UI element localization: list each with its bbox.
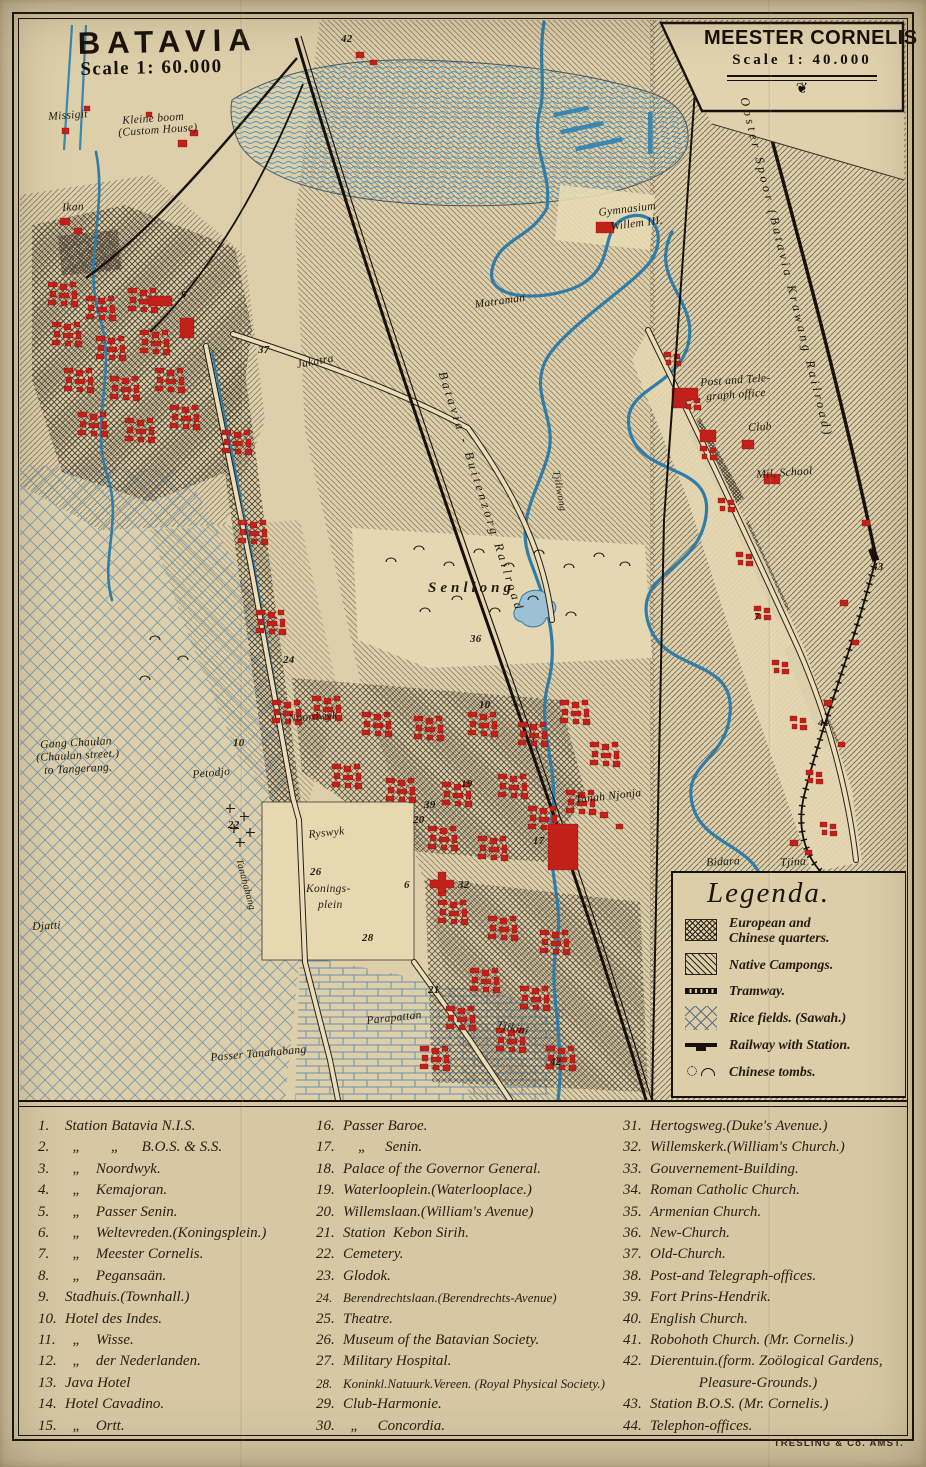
index-entry-label: Glodok. bbox=[343, 1266, 391, 1287]
index-entry-label: Willemslaan.(William's Avenue) bbox=[343, 1202, 533, 1223]
legend-box: Legenda. European and Chinese quarters. … bbox=[671, 871, 906, 1098]
index-entry-label: Hotel Cavadino. bbox=[65, 1394, 164, 1415]
index-entry-number: 11. bbox=[38, 1330, 65, 1351]
index-entry: 12. „ der Nederlanden. bbox=[38, 1351, 323, 1372]
index-entry-label: Hotel des Indes. bbox=[65, 1309, 162, 1330]
index-entry: 40. English Church. bbox=[623, 1309, 908, 1330]
index-entry: 13. Java Hotel bbox=[38, 1373, 323, 1394]
index-entry-number: 23. bbox=[316, 1266, 343, 1287]
index-entry-label: Waterlooplein.(Waterlooplace.) bbox=[343, 1180, 532, 1201]
legend-item: Chinese tombs. bbox=[685, 1060, 897, 1082]
legend-item: European and Chinese quarters. bbox=[685, 915, 897, 946]
index-entry-number: 24. bbox=[316, 1287, 343, 1308]
legend-item: Rice fields. (Sawah.) bbox=[685, 1006, 897, 1030]
index-entry-number: 19. bbox=[316, 1180, 343, 1201]
index-entry-label: „ „ B.O.S. & S.S. bbox=[65, 1137, 222, 1158]
map-sheet: BATAVIA Scale 1: 60.000 MEESTER CORNELIS… bbox=[0, 0, 926, 1467]
index-entry: 7. „ Meester Cornelis. bbox=[38, 1244, 323, 1265]
index-entry-number: 41. bbox=[623, 1330, 650, 1351]
index-entry-number: 36. bbox=[623, 1223, 650, 1244]
index-entry: 1. Station Batavia N.I.S. bbox=[38, 1116, 323, 1137]
legend-symbol-icon bbox=[685, 988, 717, 994]
index-entry-label: „ Ortt. bbox=[65, 1416, 125, 1437]
index-entry: 20. Willemslaan.(William's Avenue) bbox=[316, 1202, 624, 1223]
legend-symbol-icon bbox=[685, 1006, 717, 1030]
index-entry-label: „ Noordwyk. bbox=[65, 1159, 161, 1180]
index-column-1: 1. Station Batavia N.I.S. 2. „ „ B.O.S. … bbox=[38, 1116, 323, 1437]
index-entry-label: Berendrechtslaan.(Berendrechts-Avenue) bbox=[343, 1287, 557, 1308]
index-entry: 33. Gouvernement-Building. bbox=[623, 1159, 908, 1180]
index-entry-label: Roman Catholic Church. bbox=[650, 1180, 800, 1201]
index-entry-number: 13. bbox=[38, 1373, 65, 1394]
index-entry: 10. Hotel des Indes. bbox=[38, 1309, 323, 1330]
meester-cornelis-title-block: MEESTER CORNELIS Scale 1: 40.000 ❦ bbox=[704, 27, 900, 96]
index-entry-label: „ Passer Senin. bbox=[65, 1202, 178, 1223]
index-entry-number: 5. bbox=[38, 1202, 65, 1223]
index-entry-number: 30. bbox=[316, 1416, 343, 1437]
index-entry-number: 21. bbox=[316, 1223, 343, 1244]
index-entry: 8. „ Pegansaän. bbox=[38, 1266, 323, 1287]
index-entry: 11. „ Wisse. bbox=[38, 1330, 323, 1351]
legend-item-label: Railway with Station. bbox=[729, 1037, 851, 1052]
index-entry-label: Museum of the Batavian Society. bbox=[343, 1330, 539, 1351]
index-entry: 28. Koninkl.Natuurk.Vereen. (Royal Physi… bbox=[316, 1373, 624, 1394]
index-entry: 4. „ Kemajoran. bbox=[38, 1180, 323, 1201]
index-entry-label: English Church. bbox=[650, 1309, 748, 1330]
index-entry-label: Willemskerk.(William's Church.) bbox=[650, 1137, 845, 1158]
legend-items: European and Chinese quarters. Native Ca… bbox=[685, 915, 897, 1082]
index-entry-number: 2. bbox=[38, 1137, 65, 1158]
index-entry-number: 42. bbox=[623, 1351, 650, 1394]
index-entry-label: „ Wisse. bbox=[65, 1330, 134, 1351]
index-entry: 43. Station B.O.S. (Mr. Cornelis.) bbox=[623, 1394, 908, 1415]
meester-cornelis-scale: Scale 1: 40.000 bbox=[704, 52, 900, 69]
index-entry-number: 32. bbox=[623, 1137, 650, 1158]
legend-item-label: Tramway. bbox=[729, 983, 785, 998]
index-entry: 15. „ Ortt. bbox=[38, 1416, 323, 1437]
index-entry-label: Gouvernement-Building. bbox=[650, 1159, 799, 1180]
index-entry: 19. Waterlooplein.(Waterlooplace.) bbox=[316, 1180, 624, 1201]
index-entry-label: Palace of the Governor General. bbox=[343, 1159, 541, 1180]
index-entry-label: „ Senin. bbox=[343, 1137, 422, 1158]
index-entry-number: 9. bbox=[38, 1287, 65, 1308]
index-entry-number: 16. bbox=[316, 1116, 343, 1137]
index-entry-number: 4. bbox=[38, 1180, 65, 1201]
index-entry-number: 28. bbox=[316, 1373, 343, 1394]
index-entry-label: Robohoth Church. (Mr. Cornelis.) bbox=[650, 1330, 854, 1351]
index-entry-label: Java Hotel bbox=[65, 1373, 130, 1394]
legend-item: Tramway. bbox=[685, 983, 897, 998]
index-entry: 30. „ Concordia. bbox=[316, 1416, 624, 1437]
fleuron-ornament-icon: ❦ bbox=[704, 81, 900, 96]
index-entry: 42. Dierentuin.(form. Zoölogical Gardens… bbox=[623, 1351, 908, 1394]
index-entry-number: 17. bbox=[316, 1137, 343, 1158]
index-entry: 39. Fort Prins-Hendrik. bbox=[623, 1287, 908, 1308]
index-entry-number: 31. bbox=[623, 1116, 650, 1137]
index-entry: 24. Berendrechtslaan.(Berendrechts-Avenu… bbox=[316, 1287, 624, 1308]
index-section: 1. Station Batavia N.I.S. 2. „ „ B.O.S. … bbox=[0, 1106, 926, 1426]
index-entry: 41. Robohoth Church. (Mr. Cornelis.) bbox=[623, 1330, 908, 1351]
index-entry: 25. Theatre. bbox=[316, 1309, 624, 1330]
batavia-title-block: BATAVIA Scale 1: 60.000 bbox=[77, 22, 258, 81]
index-entry-label: Club-Harmonie. bbox=[343, 1394, 442, 1415]
legend-item-label: Rice fields. (Sawah.) bbox=[729, 1010, 846, 1025]
index-entry-label: Dierentuin.(form. Zoölogical Gardens, Pl… bbox=[650, 1351, 883, 1394]
index-entry-number: 38. bbox=[623, 1266, 650, 1287]
index-entry-label: „ der Nederlanden. bbox=[65, 1351, 201, 1372]
index-entry: 44. Telephon-offices. bbox=[623, 1416, 908, 1437]
index-entry: 32. Willemskerk.(William's Church.) bbox=[623, 1137, 908, 1158]
index-entry-label: Armenian Church. bbox=[650, 1202, 761, 1223]
index-column-2: 16. Passer Baroe. 17. „ Senin. 18. Palac… bbox=[316, 1116, 624, 1437]
index-entry: 22. Cemetery. bbox=[316, 1244, 624, 1265]
index-entry-number: 8. bbox=[38, 1266, 65, 1287]
index-entry-number: 12. bbox=[38, 1351, 65, 1372]
index-entry-number: 1. bbox=[38, 1116, 65, 1137]
index-entry: 18. Palace of the Governor General. bbox=[316, 1159, 624, 1180]
index-entry-number: 29. bbox=[316, 1394, 343, 1415]
index-entry-number: 10. bbox=[38, 1309, 65, 1330]
index-entry-number: 14. bbox=[38, 1394, 65, 1415]
index-entry-number: 43. bbox=[623, 1394, 650, 1415]
index-entry-number: 22. bbox=[316, 1244, 343, 1265]
index-entry-label: Hertogsweg.(Duke's Avenue.) bbox=[650, 1116, 827, 1137]
index-entry: 6. „ Weltevreden.(Koningsplein.) bbox=[38, 1223, 323, 1244]
index-entry-label: „ Concordia. bbox=[343, 1416, 445, 1437]
index-entry: 31. Hertogsweg.(Duke's Avenue.) bbox=[623, 1116, 908, 1137]
index-column-3: 31. Hertogsweg.(Duke's Avenue.) 32. Will… bbox=[623, 1116, 908, 1437]
index-entry-label: Old-Church. bbox=[650, 1244, 726, 1265]
index-entry-label: Military Hospital. bbox=[343, 1351, 451, 1372]
legend-item-label: Chinese tombs. bbox=[729, 1064, 816, 1079]
index-entry-number: 6. bbox=[38, 1223, 65, 1244]
index-entry: 38. Post-and Telegraph-offices. bbox=[623, 1266, 908, 1287]
batavia-title: BATAVIA bbox=[77, 22, 258, 62]
index-entry-label: Theatre. bbox=[343, 1309, 393, 1330]
index-entry-label: „ Meester Cornelis. bbox=[65, 1244, 203, 1265]
index-entry: 3. „ Noordwyk. bbox=[38, 1159, 323, 1180]
index-entry: 35. Armenian Church. bbox=[623, 1202, 908, 1223]
index-entry-label: Koninkl.Natuurk.Vereen. (Royal Physical … bbox=[343, 1373, 605, 1394]
index-entry: 5. „ Passer Senin. bbox=[38, 1202, 323, 1223]
index-entry: 2. „ „ B.O.S. & S.S. bbox=[38, 1137, 323, 1158]
index-entry-number: 34. bbox=[623, 1180, 650, 1201]
legend-symbol-icon bbox=[685, 919, 717, 941]
index-entry-label: Station Kebon Sirih. bbox=[343, 1223, 469, 1244]
legend-symbol-icon bbox=[685, 1060, 717, 1082]
map-frame-bottom bbox=[18, 1100, 908, 1107]
index-entry: 37. Old-Church. bbox=[623, 1244, 908, 1265]
index-entry: 17. „ Senin. bbox=[316, 1137, 624, 1158]
index-entry-number: 35. bbox=[623, 1202, 650, 1223]
index-entry-number: 39. bbox=[623, 1287, 650, 1308]
legend-item-label: European and Chinese quarters. bbox=[729, 915, 829, 946]
index-entry: 23. Glodok. bbox=[316, 1266, 624, 1287]
index-entry-label: „ Weltevreden.(Koningsplein.) bbox=[65, 1223, 266, 1244]
printer-credit: TRESLING & Co. AMST. bbox=[774, 1438, 904, 1449]
index-entry-number: 25. bbox=[316, 1309, 343, 1330]
batavia-scale: Scale 1: 60.000 bbox=[80, 55, 258, 81]
legend-symbol-icon bbox=[685, 953, 717, 975]
index-entry: 26. Museum of the Batavian Society. bbox=[316, 1330, 624, 1351]
index-entry: 27. Military Hospital. bbox=[316, 1351, 624, 1372]
index-entry-label: Telephon-offices. bbox=[650, 1416, 752, 1437]
legend-item: Native Campongs. bbox=[685, 953, 897, 975]
index-entry-number: 27. bbox=[316, 1351, 343, 1372]
legend-symbol-icon bbox=[685, 1043, 717, 1047]
index-entry-label: Stadhuis.(Townhall.) bbox=[65, 1287, 189, 1308]
index-entry-number: 40. bbox=[623, 1309, 650, 1330]
legend-title: Legenda. bbox=[707, 877, 897, 910]
index-entry-number: 18. bbox=[316, 1159, 343, 1180]
index-entry-number: 7. bbox=[38, 1244, 65, 1265]
index-entry-number: 26. bbox=[316, 1330, 343, 1351]
index-entry-label: Passer Baroe. bbox=[343, 1116, 427, 1137]
index-entry-label: Station B.O.S. (Mr. Cornelis.) bbox=[650, 1394, 828, 1415]
index-entry-number: 44. bbox=[623, 1416, 650, 1437]
index-entry-label: Fort Prins-Hendrik. bbox=[650, 1287, 771, 1308]
index-entry-number: 37. bbox=[623, 1244, 650, 1265]
index-entry: 34. Roman Catholic Church. bbox=[623, 1180, 908, 1201]
index-entry: 36. New-Church. bbox=[623, 1223, 908, 1244]
index-entry-label: „ Kemajoran. bbox=[65, 1180, 167, 1201]
index-entry: 14. Hotel Cavadino. bbox=[38, 1394, 323, 1415]
meester-cornelis-title: MEESTER CORNELIS bbox=[704, 27, 900, 50]
index-entry: 21. Station Kebon Sirih. bbox=[316, 1223, 624, 1244]
index-entry-label: „ Pegansaän. bbox=[65, 1266, 166, 1287]
index-entry-number: 3. bbox=[38, 1159, 65, 1180]
index-entry-number: 15. bbox=[38, 1416, 65, 1437]
legend-item-label: Native Campongs. bbox=[729, 957, 833, 972]
index-entry-label: Station Batavia N.I.S. bbox=[65, 1116, 195, 1137]
index-entry: 29. Club-Harmonie. bbox=[316, 1394, 624, 1415]
index-entry-label: New-Church. bbox=[650, 1223, 730, 1244]
index-entry-number: 20. bbox=[316, 1202, 343, 1223]
index-entry-label: Cemetery. bbox=[343, 1244, 403, 1265]
index-entry-number: 33. bbox=[623, 1159, 650, 1180]
index-entry: 9. Stadhuis.(Townhall.) bbox=[38, 1287, 323, 1308]
index-entry: 16. Passer Baroe. bbox=[316, 1116, 624, 1137]
index-entry-label: Post-and Telegraph-offices. bbox=[650, 1266, 816, 1287]
legend-item: Railway with Station. bbox=[685, 1037, 897, 1052]
